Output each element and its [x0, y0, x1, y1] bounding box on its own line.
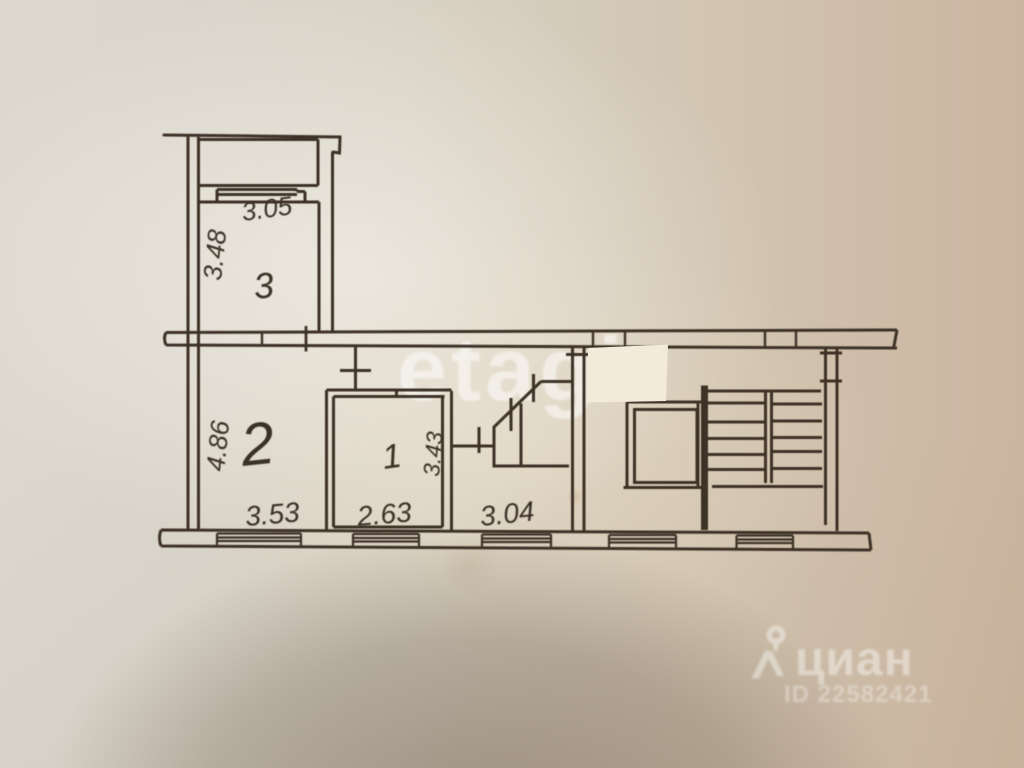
- svg-text:3.04: 3.04: [478, 495, 535, 532]
- svg-text:3.43: 3.43: [418, 430, 448, 477]
- svg-text:3.53: 3.53: [244, 496, 301, 532]
- svg-text:3: 3: [252, 264, 276, 307]
- svg-text:ID 22582421: ID 22582421: [784, 681, 932, 708]
- svg-text:1: 1: [380, 437, 404, 477]
- svg-text:2.63: 2.63: [355, 496, 413, 532]
- svg-text:3.05: 3.05: [240, 190, 295, 227]
- svg-text:4.86: 4.86: [200, 419, 235, 473]
- svg-text:2: 2: [236, 409, 277, 479]
- svg-text:циан: циан: [795, 633, 914, 686]
- svg-text:3.48: 3.48: [197, 228, 232, 282]
